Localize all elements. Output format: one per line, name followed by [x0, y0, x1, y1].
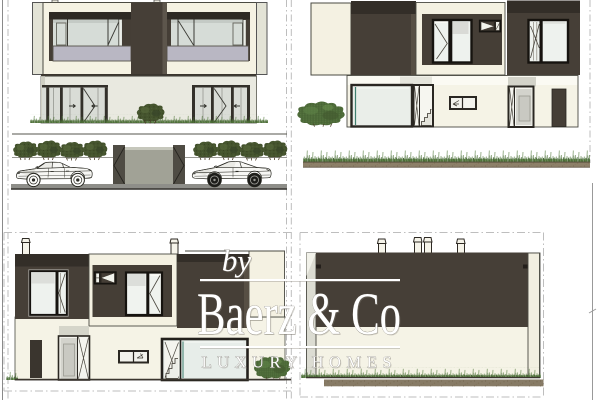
svg-text:LUXURY HOMES: LUXURY HOMES — [202, 353, 399, 372]
svg-text:by: by — [222, 243, 252, 278]
svg-text:Baerz & Co: Baerz & Co — [197, 281, 401, 347]
